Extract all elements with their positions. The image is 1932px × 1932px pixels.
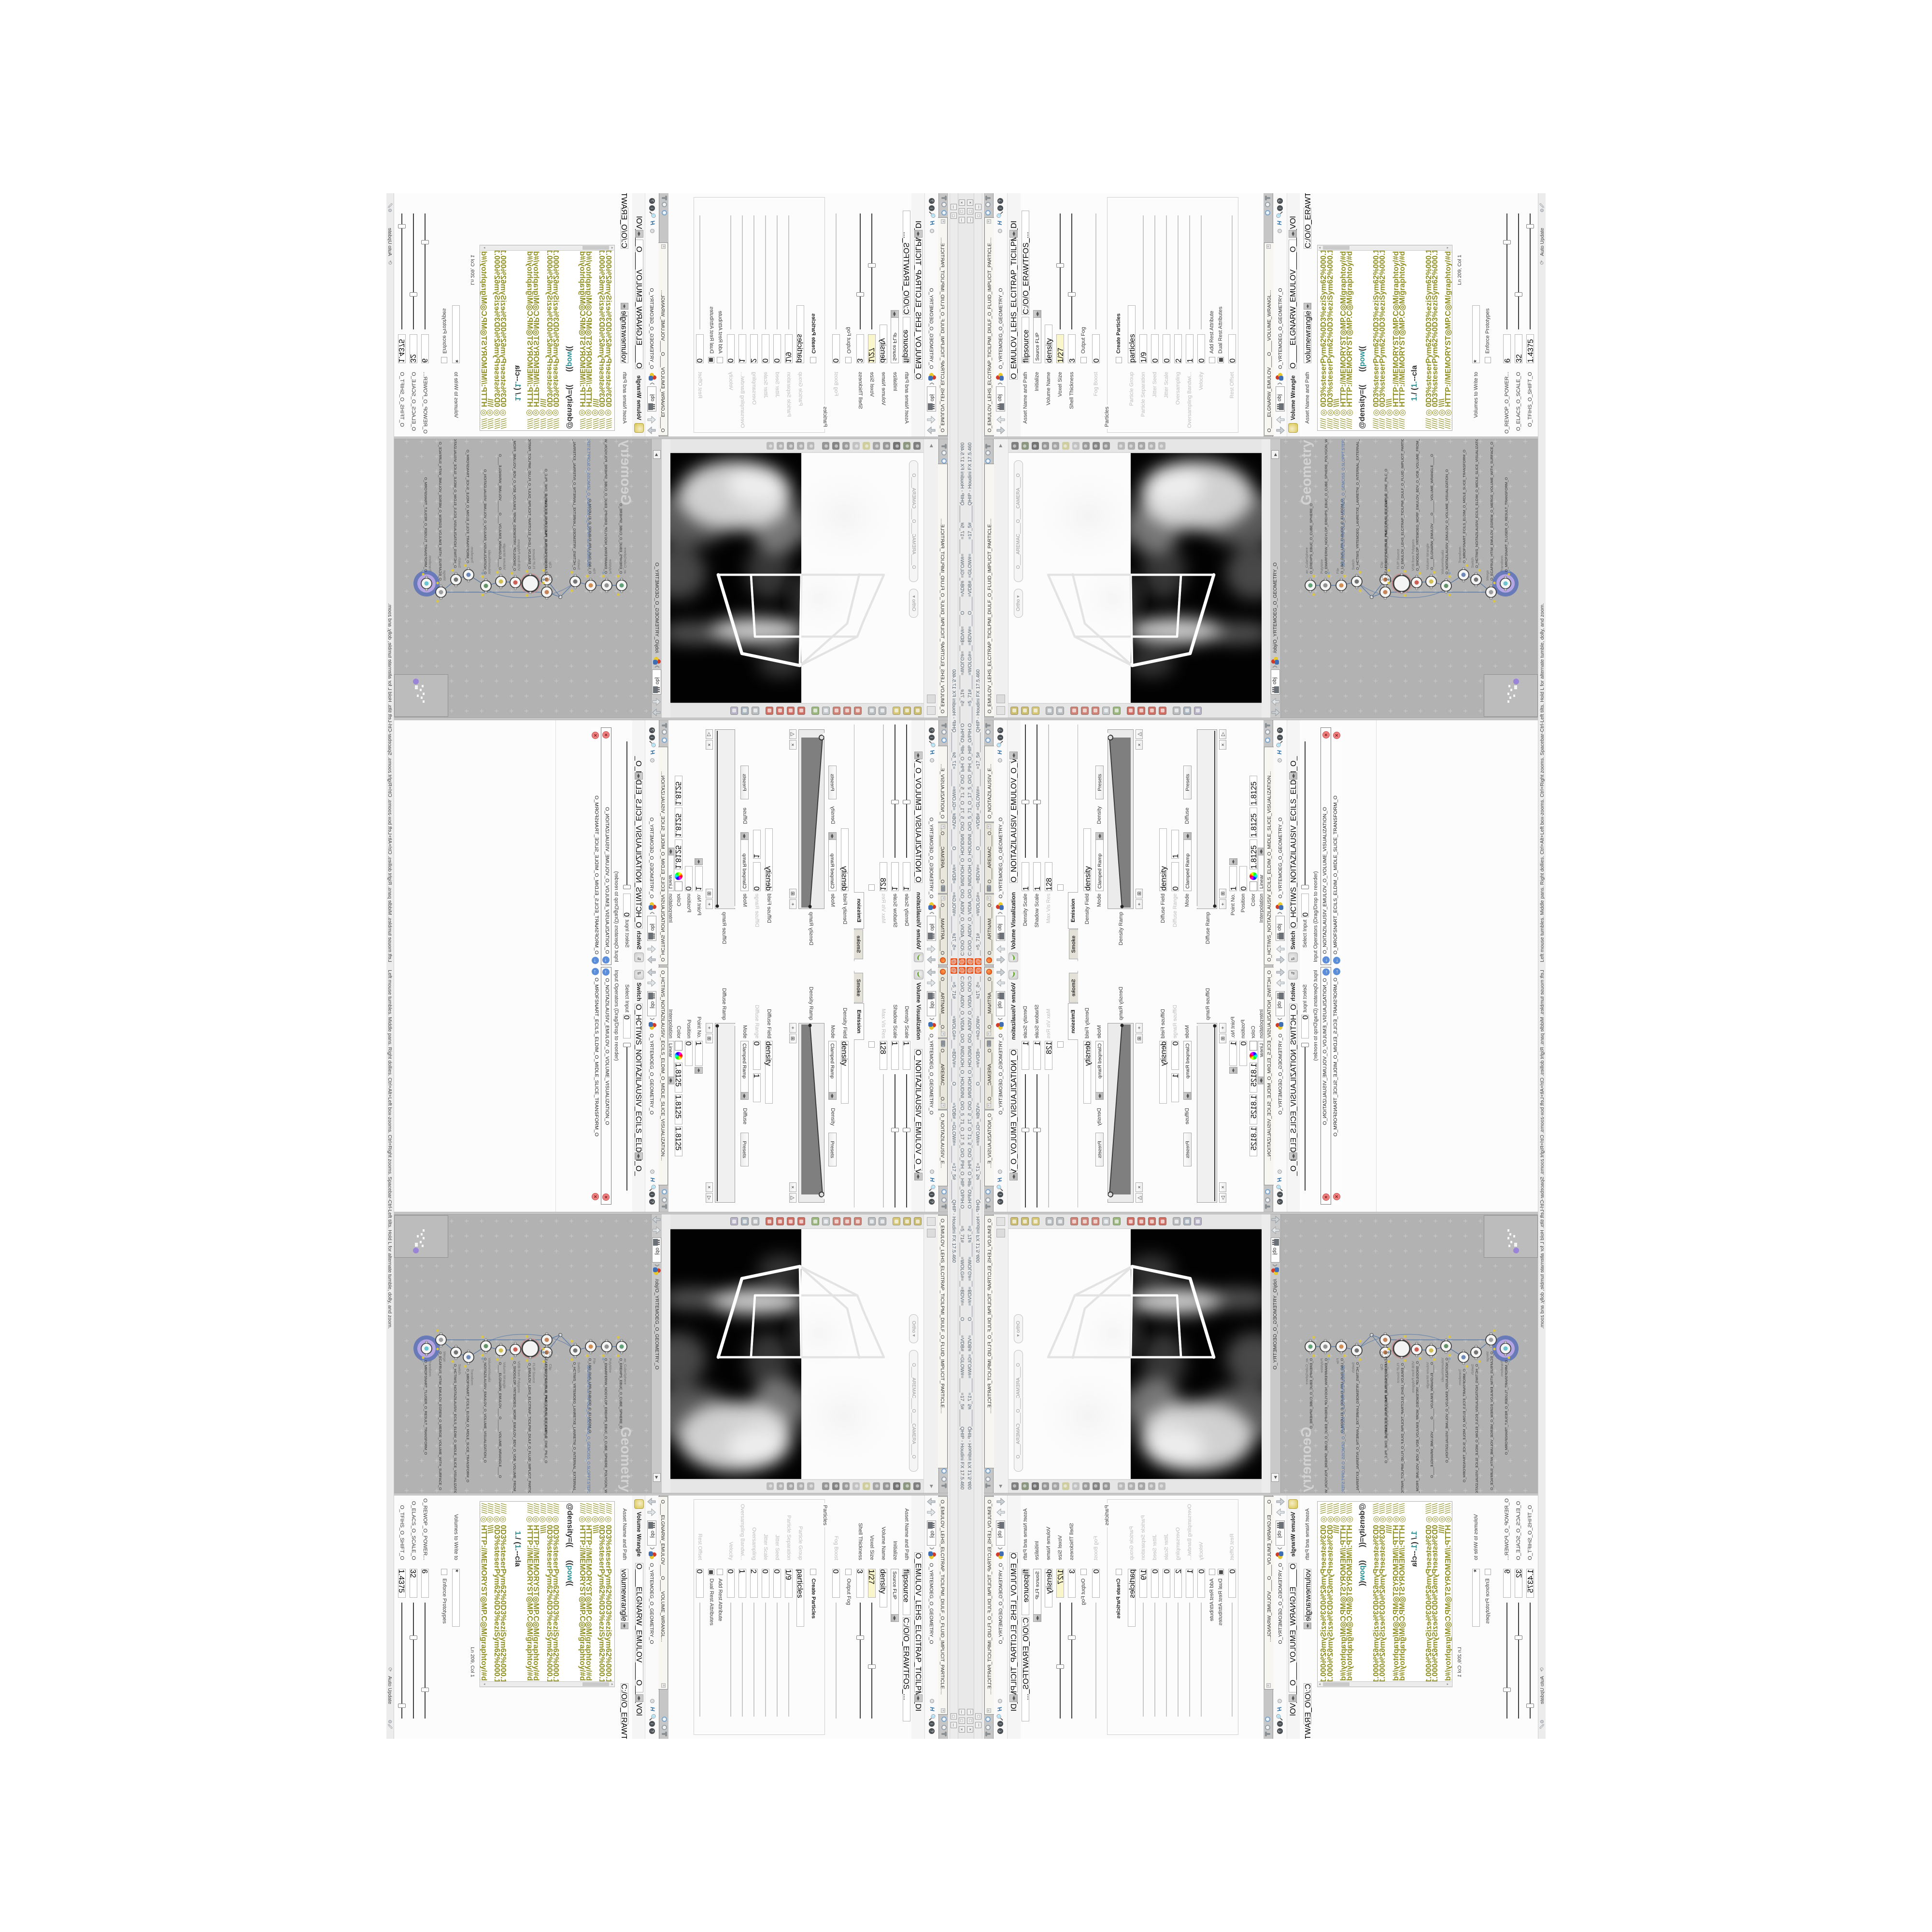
svg-text:Merge: Merge <box>1485 570 1490 581</box>
svg-text:O_ECAFRUS_HTIW_EMULOV_EGREM_O_: O_ECAFRUS_HTIW_EMULOV_EGREM_O_MERGE_VOLU… <box>1490 442 1494 581</box>
svg-text:O_EREHPS_EBUC_O_CUBE_SPHERE_O: O_EREHPS_EBUC_O_CUBE_SPHERE_O <box>1309 1358 1313 1429</box>
svg-text:O_EMULOV_LEHS_ELCITRAP_TICILPM: O_EMULOV_LEHS_ELCITRAP_TICILPMI_DIULF_O_… <box>527 1363 532 1493</box>
svg-text:O_SNOGILOP_YRTEMOEG_MORF_EMULO: O_SNOGILOP_YRTEMOEG_MORF_EMULOV_BDV_O_VD… <box>1415 1361 1420 1493</box>
svg-text:PolyWire: PolyWire <box>608 559 612 574</box>
svg-text:O_SNOGILOP_YRTEMOEG_MORF_EMULO: O_SNOGILOP_YRTEMOEG_MORF_EMULOV_BDV_O_VD… <box>512 439 517 571</box>
svg-text:Volume Wrangle: Volume Wrangle <box>502 1362 507 1389</box>
svg-text:File: File <box>1335 568 1340 574</box>
svg-text:Clip: Clip <box>1379 1364 1384 1370</box>
svg-text:O____ELGNARW_EMULOV____O______: O____ELGNARW_EMULOV____O______VOLUME_WRA… <box>1430 454 1434 570</box>
svg-text:Clip: Clip <box>548 1364 553 1370</box>
svg-text:O____ELGNARW_EMULOV____O______: O____ELGNARW_EMULOV____O______VOLUME_WRA… <box>498 454 502 570</box>
svg-text:Merge: Merge <box>442 1351 447 1362</box>
svg-text:O_MROFSNART_ECILS_ELDIM_O_MIDL: O_MROFSNART_ECILS_ELDIM_O_MIDLE_SLICE_TR… <box>1462 450 1466 563</box>
svg-text:O____ELGNARW_EMULOV____O______: O____ELGNARW_EMULOV____O______VOLUME_WRA… <box>498 1362 502 1478</box>
svg-text:O_EMARFERIW_NOGYLOP_EREHPS_EBU: O_EMARFERIW_NOGYLOP_EREHPS_EBUC_O_CUBE_S… <box>1324 1358 1328 1493</box>
svg-text:O_NOITAZILAUSIV_EMULOV_O_VOLUM: O_NOITAZILAUSIV_EMULOV_O_VOLUME_VISUALIZ… <box>1445 469 1449 574</box>
svg-text:Clip: Clip <box>1379 574 1384 581</box>
svg-text:O_ECAFRUS_HTIW_EMULOV_EGREM_O_: O_ECAFRUS_HTIW_EMULOV_EGREM_O_MERGE_VOLU… <box>1490 1351 1494 1490</box>
svg-text:O_ECAFRUS_PILC_DUB_PMEG_O_SLIC: O_ECAFRUS_PILC_DUB_PMEG_O_SLICE_CLIP_O <box>544 494 548 581</box>
svg-text:O____ELGNARW_EMULOV____O______: O____ELGNARW_EMULOV____O______VOLUME_WRA… <box>1430 1362 1434 1478</box>
svg-text:O_EREHPS_EBUC_O_CUBE_SPHERE_O: O_EREHPS_EBUC_O_CUBE_SPHERE_O <box>619 503 623 574</box>
svg-text:O_EREHPS_EBUC_O_CUBE_SPHERE_O: O_EREHPS_EBUC_O_CUBE_SPHERE_O <box>1309 503 1313 574</box>
svg-text:O_ECAFRUS_PILC_DUB_PMEG_O_SLIC: O_ECAFRUS_PILC_DUB_PMEG_O_SLICE_CLIP_O <box>1384 1351 1388 1438</box>
svg-text:O_HCTIWS_YRTEMOEG_LANRETXE_LAN: O_HCTIWS_YRTEMOEG_LANRETXE_LANRETNI_O_IN… <box>572 1362 577 1493</box>
svg-text:VDB from Polygons: VDB from Polygons <box>1411 539 1415 571</box>
svg-text:JBO.MD3,PETS.TRPOLS_O_5SLVREG_: JBO.MD3,PETS.TRPOLS_O_5SLVREG_O_GEMCISS_… <box>586 1365 591 1493</box>
svg-text:PolyWire: PolyWire <box>1320 559 1324 574</box>
svg-text:Switch: Switch <box>1470 557 1475 568</box>
svg-text:File: File <box>592 568 597 574</box>
svg-text:O_EMULOV_LEHS_ELCITRAP_TICILPM: O_EMULOV_LEHS_ELCITRAP_TICILPMI_DIULF_O_… <box>1400 1363 1405 1493</box>
svg-text:O_ECAFRUS_HTIW_EMULOV_EGREM_O_: O_ECAFRUS_HTIW_EMULOV_EGREM_O_MERGE_VOLU… <box>438 1351 442 1490</box>
svg-text:PolyWire: PolyWire <box>1320 1358 1324 1373</box>
svg-text:O_ECAFRUS_PILC_DUB_PMEG_O_SLIC: O_ECAFRUS_PILC_DUB_PMEG_O_SLICE_CLIP_O <box>1384 494 1388 581</box>
svg-text:Switch: Switch <box>457 557 462 568</box>
svg-text:Transform: Transform <box>1500 1360 1504 1377</box>
svg-text:O_NOITAZILAUSIV_EMULOV_O_VOLUM: O_NOITAZILAUSIV_EMULOV_O_VOLUME_VISUALIZ… <box>1445 1358 1449 1463</box>
svg-text:an_CubeSphere: an_CubeSphere <box>623 547 627 574</box>
svg-text:O_EMARFERIW_NOGYLOP_EREHPS_EBU: O_EMARFERIW_NOGYLOP_EREHPS_EBUC_O_CUBE_S… <box>1324 439 1328 574</box>
svg-text:VDB from Polygons: VDB from Polygons <box>517 539 521 571</box>
svg-text:FLIP Source: FLIP Source <box>1396 549 1400 569</box>
svg-text:Switch: Switch <box>457 1364 462 1375</box>
svg-text:Transform: Transform <box>428 555 432 572</box>
svg-text:Volume Wrangle: Volume Wrangle <box>1425 1362 1430 1389</box>
svg-text:O_MROFSNART_ECILS_ELDIM_O_MIDL: O_MROFSNART_ECILS_ELDIM_O_MIDLE_SLICE_TR… <box>1462 1369 1466 1482</box>
svg-text:O_HCTIWS_YRTEMOEG_LANRETXE_LAN: O_HCTIWS_YRTEMOEG_LANRETXE_LANRETNI_O_IN… <box>1355 439 1360 570</box>
svg-text:JBO.MD3,PETS.TRPOLS_O_5SLVREG_: JBO.MD3,PETS.TRPOLS_O_5SLVREG_O_GEMCISS_… <box>1341 439 1346 567</box>
svg-text:O_EMARFERIW_NOGYLOP_EREHPS_EBU: O_EMARFERIW_NOGYLOP_EREHPS_EBUC_O_CUBE_S… <box>604 439 608 574</box>
svg-text:Volume Wrangle: Volume Wrangle <box>502 543 507 570</box>
svg-text:File: File <box>1335 1358 1340 1364</box>
svg-text:Merge: Merge <box>1485 1351 1490 1362</box>
svg-text:JBO.MD3,PETS.TRPOLS_O_5SLVREG_: JBO.MD3,PETS.TRPOLS_O_5SLVREG_O_GEMCISS_… <box>586 439 591 567</box>
svg-text:JBO.MD3,PETS.TRPOLS_O_5SLVREG_: JBO.MD3,PETS.TRPOLS_O_5SLVREG_O_GEMCISS_… <box>1341 1365 1346 1493</box>
svg-text:Switch: Switch <box>1351 559 1355 570</box>
svg-text:FLIP Source: FLIP Source <box>532 549 536 569</box>
svg-text:Clip: Clip <box>548 1351 553 1358</box>
svg-text:Transform: Transform <box>1458 547 1462 563</box>
svg-text:VolumeVisualiz: VolumeVisualiz <box>487 550 492 574</box>
svg-text:O_EMULOV_LEHS_ELCITRAP_TICILPM: O_EMULOV_LEHS_ELCITRAP_TICILPMI_DIULF_O_… <box>1400 439 1405 569</box>
svg-text:File: File <box>592 1358 597 1364</box>
svg-text:O_ECAFRUS_HTIW_EMULOV_EGREM_O_: O_ECAFRUS_HTIW_EMULOV_EGREM_O_MERGE_VOLU… <box>438 442 442 581</box>
svg-text:Switch: Switch <box>1470 1364 1475 1375</box>
svg-text:O_NOITAZILAUSIV_EMULOV_O_VOLUM: O_NOITAZILAUSIV_EMULOV_O_VOLUME_VISUALIZ… <box>483 1358 487 1463</box>
svg-text:VDB from Polygons: VDB from Polygons <box>1411 1361 1415 1393</box>
svg-text:Transform: Transform <box>470 1369 474 1385</box>
svg-text:O_SNOGILOP_YRTEMOEG_MORF_EMULO: O_SNOGILOP_YRTEMOEG_MORF_EMULOV_BDV_O_VD… <box>512 1361 517 1493</box>
svg-text:O_EMULOV_LEHS_ELCITRAP_TICILPM: O_EMULOV_LEHS_ELCITRAP_TICILPMI_DIULF_O_… <box>527 439 532 569</box>
svg-text:O_SNOGILOP_YRTEMOEG_MORF_EMULO: O_SNOGILOP_YRTEMOEG_MORF_EMULOV_BDV_O_VD… <box>1415 439 1420 571</box>
svg-text:Transform: Transform <box>470 547 474 563</box>
svg-text:Switch: Switch <box>577 1362 581 1373</box>
svg-text:O_HCTIWS_YRTEMOEG_LANRETXE_LAN: O_HCTIWS_YRTEMOEG_LANRETXE_LANRETNI_O_IN… <box>572 439 577 570</box>
svg-text:Clip: Clip <box>1379 562 1384 568</box>
svg-text:O_NOITAZILAUSIV_EMULOV_O_VOLUM: O_NOITAZILAUSIV_EMULOV_O_VOLUME_VISUALIZ… <box>483 469 487 574</box>
svg-text:O_MROFSNART_ECILS_ELDIM_O_MIDL: O_MROFSNART_ECILS_ELDIM_O_MIDLE_SLICE_TR… <box>466 450 470 563</box>
svg-text:VolumeVisualiz: VolumeVisualiz <box>1440 550 1445 574</box>
svg-text:VolumeVisualiz: VolumeVisualiz <box>1440 1358 1445 1382</box>
svg-text:an_CubeSphere: an_CubeSphere <box>623 1358 627 1385</box>
svg-text:Transform: Transform <box>1500 555 1504 572</box>
svg-text:Switch: Switch <box>577 559 581 570</box>
svg-text:Volume Wrangle: Volume Wrangle <box>1425 543 1430 570</box>
svg-text:FLIP Source: FLIP Source <box>1396 1363 1400 1383</box>
svg-text:VDB from Polygons: VDB from Polygons <box>517 1361 521 1393</box>
svg-text:Merge: Merge <box>442 570 447 581</box>
svg-text:O_EMARFERIW_NOGYLOP_EREHPS_EBU: O_EMARFERIW_NOGYLOP_EREHPS_EBUC_O_CUBE_S… <box>604 1358 608 1493</box>
svg-text:Transform: Transform <box>1458 1369 1462 1385</box>
svg-text:O_ECAFRUS_PILC_DUB_PMEG_O_SLIC: O_ECAFRUS_PILC_DUB_PMEG_O_SLICE_CLIP_O <box>544 1351 548 1438</box>
svg-text:Clip: Clip <box>548 562 553 568</box>
svg-text:FLIP Source: FLIP Source <box>532 1363 536 1383</box>
svg-text:O_EREHPS_EBUC_O_CUBE_SPHERE_O: O_EREHPS_EBUC_O_CUBE_SPHERE_O <box>619 1358 623 1429</box>
svg-text:O_MROFSNART_ECILS_ELDIM_O_MIDL: O_MROFSNART_ECILS_ELDIM_O_MIDLE_SLICE_TR… <box>466 1369 470 1482</box>
svg-text:Switch: Switch <box>1351 1362 1355 1373</box>
svg-text:an_CubeSphere: an_CubeSphere <box>1305 1358 1309 1385</box>
svg-text:O_HCTIWS_YRTEMOEG_LANRETXE_LAN: O_HCTIWS_YRTEMOEG_LANRETXE_LANRETNI_O_IN… <box>1355 1362 1360 1493</box>
svg-text:Transform: Transform <box>428 1360 432 1377</box>
svg-text:PolyWire: PolyWire <box>608 1358 612 1373</box>
svg-text:VolumeVisualiz: VolumeVisualiz <box>487 1358 492 1382</box>
svg-text:Clip: Clip <box>1379 1351 1384 1358</box>
svg-text:Clip: Clip <box>548 574 553 581</box>
svg-text:an_CubeSphere: an_CubeSphere <box>1305 547 1309 574</box>
